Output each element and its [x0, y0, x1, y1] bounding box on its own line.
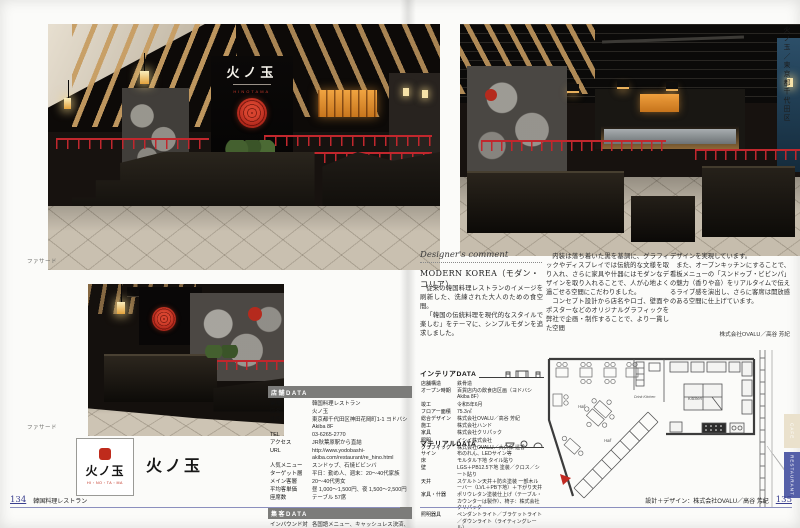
row-label: メイン客層	[270, 479, 312, 486]
right-footer: 設計＋デザイン：株式会社OVALU／高谷 芳紀 135	[420, 496, 792, 508]
designer-credit: 株式会社OVALU／高谷 芳紀	[670, 330, 790, 338]
row-value: 布のれん、LEDサイン等	[457, 451, 543, 457]
index-tab-cafe: CAFE	[784, 414, 800, 448]
black-counter	[104, 354, 218, 402]
logo-seal-icon	[99, 448, 111, 460]
table-row: 店名 火ノ玉	[268, 408, 412, 416]
table-row: 照明器具 ペンダントライト／ブラケットライト／ダウンライト（ライティングレール）	[420, 512, 544, 528]
row-value: スケルトン天井＋防炎塗装 一部木ルーバー（LVL＋PB下地）＋下がり天井	[457, 479, 543, 492]
wall-lamp	[422, 90, 428, 98]
row-value: 株式会社ハンド	[457, 423, 543, 429]
cloud-graphic-wall	[467, 66, 567, 173]
left-page-number: 134	[10, 496, 26, 505]
photo-dining-main	[460, 24, 800, 256]
row-label: 天井	[421, 479, 457, 492]
row-label: 人気メニュー	[270, 463, 312, 470]
comment-column-3: デザインを実現しています。 また、オープンキッチンにすることで、看板メニューの「…	[670, 252, 790, 306]
red-railing	[264, 135, 433, 146]
table-row: サイン 布のれん、LEDサイン等	[420, 451, 544, 458]
table-row: 店舗構造 鉄骨造	[420, 381, 544, 388]
row-value: モルタル下地 タイル貼り	[457, 458, 543, 464]
bench-seating-center	[631, 196, 695, 242]
planter-greenery	[202, 345, 241, 359]
red-railing	[695, 149, 800, 160]
comment-paragraph: 内装は落ち着いた黒を基調に、グラフィックやディスプレイでは伝統的な文様を取り入れ…	[546, 252, 669, 297]
table-row: 天井 スケルトン天井＋防炎塗装 一部木ルーバー（LVL＋PB下地）＋下がり天井	[420, 478, 544, 492]
bench-seating-right	[702, 166, 795, 238]
plan-label-drink-kitchen: Drink Kitchen	[634, 395, 655, 399]
row-value: 昼 1,000〜1,500円、夜 1,500〜2,500円	[312, 487, 410, 494]
row-value: 百貨店内の飲食店区画（ヨドバシAkiba 8F）	[457, 388, 543, 401]
row-value: ペンダントライト／ブラケットライト／ダウンライト（ライティングレール）	[457, 512, 543, 528]
row-label: 竣工	[421, 402, 457, 408]
row-value: 株式会社OVALU／高谷 芳紀	[457, 416, 543, 422]
row-value: 03-6265-2770	[312, 432, 410, 439]
row-value: 平日：勤め人、週末：20〜40代家族	[312, 471, 410, 478]
table-row: 平均客単価 昼 1,000〜1,500円、夜 1,500〜2,500円	[268, 486, 412, 494]
restaurant-name-label: 火ノ玉	[146, 452, 203, 476]
row-label: 家具	[421, 430, 457, 436]
comment-paragraph: デザインを実現しています。	[670, 252, 790, 261]
row-value: 令和5年6月	[457, 402, 543, 408]
tab-restaurant-label: RESTAURANT	[790, 455, 795, 496]
table-row: インバウンド対応 各国語メニュー、キャッシュレス決済、Wi-Fi、外国人スタッフ	[268, 521, 412, 528]
pendant-lamp	[666, 82, 678, 91]
row-value: JR秋葉原駅から直結	[312, 440, 410, 447]
row-label: 店舗構造	[421, 381, 457, 387]
small-red-emblem	[485, 89, 497, 101]
designers-comment-heading: Designer's comment	[420, 250, 542, 263]
right-footer-label: 設計＋デザイン：株式会社OVALU／高谷 芳紀	[645, 499, 769, 505]
backlit-menu-board	[640, 94, 679, 112]
tab-cafe-label: CAFE	[790, 423, 795, 439]
plan-label-hall: Hall	[578, 404, 586, 409]
red-railing	[56, 138, 209, 149]
floor-plan: Hall Hall Drink Kitchen Kitchen	[546, 350, 794, 508]
pendant-lamp	[117, 302, 125, 314]
table-row: オープン時期 百貨店内の飲食店区画（ヨドバシAkiba 8F）	[420, 388, 544, 402]
row-label: 業種	[270, 401, 312, 408]
row-value: 株式会社クリパック	[457, 430, 543, 436]
material-data-title: マテリアルDATA	[420, 438, 476, 448]
row-label: TEL	[270, 432, 312, 439]
shop-data-rows: 業種 韓国料理レストラン 店名 火ノ玉 住所 東京都千代田区神田花岡町1-1 ヨ…	[268, 400, 412, 502]
row-label: 床	[421, 458, 457, 464]
pendant-lamp	[617, 80, 629, 89]
left-footer: 134 韓国料理レストラン	[10, 496, 400, 508]
shop-data-header: 店舗DATA	[268, 386, 412, 398]
row-label: インバウンド対応	[270, 522, 312, 528]
row-value: 各国語メニュー、キャッシュレス決済、Wi-Fi、外国人スタッフ	[312, 522, 410, 528]
photo-caption-interior: ファサード	[27, 423, 57, 431]
table-row: 壁 LGS＋PB12.5下地 塗装／クロス／シート貼り	[420, 465, 544, 479]
material-data-header: マテリアルDATA	[420, 438, 544, 448]
table-row: フロアー面積 75.3㎡	[420, 408, 544, 415]
photo-facade-main: 火ノ玉 HINOTAMA	[48, 24, 440, 270]
comment-paragraph: コンセプト設計から店名やロゴ、壁面やポスターなどのオリジナルグラフィックを弊社で…	[546, 297, 669, 333]
pendant-lamp	[64, 98, 71, 109]
table-row: 人気メニュー スンドゥブ、石焼ビビンバ	[268, 462, 412, 470]
table-row: URL http://www.yodobashi-akiba.com/resta…	[268, 447, 412, 462]
row-value: 20〜40代男女	[312, 479, 410, 486]
row-label: サイン	[421, 451, 457, 457]
tile-floor	[48, 206, 440, 270]
plan-kitchen-equipment	[670, 362, 752, 433]
edge-title-vertical: 火ノ玉／東京都千代田区	[780, 26, 790, 123]
row-label: URL	[270, 448, 312, 462]
row-value: LGS＋PB12.5下地 塗装／クロス／シート貼り	[457, 465, 543, 478]
header-rule	[479, 370, 544, 378]
row-value: スンドゥブ、石焼ビビンバ	[312, 463, 410, 470]
material-data-rows: サイン 布のれん、LEDサイン等 床 モルタル下地 タイル貼り 壁 LGS＋PB…	[420, 451, 544, 528]
plan-label-kitchen: Kitchen	[688, 396, 703, 401]
row-value: 韓国料理レストラン	[312, 401, 410, 408]
red-railing	[481, 140, 666, 151]
small-red-emblem	[248, 307, 262, 321]
restaurant-logo: 火ノ玉 HI・NO・TA・MA	[76, 438, 134, 496]
row-value: 75.3㎡	[457, 409, 543, 415]
sign-divider	[233, 84, 271, 85]
table-row: アクセス JR秋葉原駅から直結	[268, 439, 412, 447]
row-value: 東京都千代田区神田花岡町1-1 ヨドバシAkiba 8F	[312, 417, 410, 431]
interior-data-header: インテリアDATA	[420, 368, 544, 378]
table-row: 住所 東京都千代田区神田花岡町1-1 ヨドバシAkiba 8F	[268, 416, 412, 431]
pendant-lamp	[140, 71, 149, 84]
plan-label-hall: Hall	[604, 438, 612, 443]
table-row: 施工 株式会社ハンド	[420, 423, 544, 430]
sign-jp-text: 火ノ玉	[226, 62, 277, 81]
tableware-icons	[504, 438, 544, 448]
photo-caption-facade: ファサード	[27, 257, 57, 265]
bench-seating-left	[467, 171, 624, 233]
photo-interior-sub	[88, 284, 284, 436]
row-value: 火ノ玉	[312, 409, 410, 416]
row-label: オープン時期	[421, 388, 457, 401]
table-row: メイン客層 20〜40代男女	[268, 478, 412, 486]
comment-paragraph: 「韓国の伝統料理を現代的なスタイルで楽しむ」をテーマに、シンプルモダンを追求しま…	[420, 311, 543, 338]
row-label: ターゲット層	[270, 471, 312, 478]
row-value: http://www.yodobashi-akiba.com/restauran…	[312, 448, 410, 462]
plan-tables	[553, 362, 638, 458]
interior-data-title: インテリアDATA	[420, 368, 476, 378]
comment-paragraph: 従来の韓国料理レストランのイメージを刷新した、洗練された大人のための食空間。	[420, 284, 543, 311]
row-label: アクセス	[270, 440, 312, 447]
table-row: 床 モルタル下地 タイル貼り	[420, 458, 544, 465]
wall-lamp	[403, 88, 409, 96]
comment-paragraph: また、オープンキッチンにすることで、看板メニューの「スンドゥブ・ビビンパ」の魅力…	[670, 261, 790, 306]
hinotama-emblem	[237, 98, 267, 128]
row-label: 住所	[270, 417, 312, 431]
promo-data-header: 集客DATA	[268, 507, 412, 519]
comment-column-1: 従来の韓国料理レストランのイメージを刷新した、洗練された大人のための食空間。 「…	[420, 284, 543, 338]
black-sign-column	[139, 290, 190, 345]
book-spread: 火ノ玉 HINOTAMA ファサード ファサ	[0, 0, 800, 528]
hinotama-emblem	[152, 307, 176, 331]
right-page-number: 135	[776, 496, 792, 505]
row-label: 照明器具	[421, 512, 457, 528]
row-label: 総合デザイン	[421, 416, 457, 422]
row-value: 鉄骨造	[457, 381, 543, 387]
table-row: 竣工 令和5年6月	[420, 401, 544, 408]
row-label: 施工	[421, 423, 457, 429]
row-label: 平均客単価	[270, 487, 312, 494]
table-row: 業種 韓国料理レストラン	[268, 400, 412, 408]
table-row: 家具 株式会社クリパック	[420, 430, 544, 437]
row-label: 店名	[270, 409, 312, 416]
material-data-table: マテリアルDATA サイン 布のれん、LEDサイン等	[420, 438, 544, 528]
row-label: 壁	[421, 465, 457, 478]
table-row: ターゲット層 平日：勤め人、週末：20〜40代家族	[268, 470, 412, 478]
index-tab-restaurant: RESTAURANT	[784, 452, 800, 498]
table-row: 総合デザイン 株式会社OVALU／高谷 芳紀	[420, 416, 544, 423]
left-footer-label: 韓国料理レストラン	[33, 499, 87, 505]
row-label: フロアー面積	[421, 409, 457, 415]
table-row: TEL 03-6265-2770	[268, 431, 412, 439]
comment-column-2: 内装は落ち着いた黒を基調に、グラフィックやディスプレイでは伝統的な文様を取り入れ…	[546, 252, 669, 333]
logo-roman-text: HI・NO・TA・MA	[87, 481, 123, 486]
sign-roman-text: HINOTAMA	[233, 89, 270, 94]
furniture-icons	[504, 368, 544, 378]
backlit-menu-board	[318, 90, 377, 117]
logo-jp-text: 火ノ玉	[85, 462, 124, 479]
header-rule	[479, 440, 544, 448]
pendant-lamp	[567, 84, 579, 93]
promo-data-rows: インバウンド対応 各国語メニュー、キャッシュレス決済、Wi-Fi、外国人スタッフ	[268, 521, 412, 528]
